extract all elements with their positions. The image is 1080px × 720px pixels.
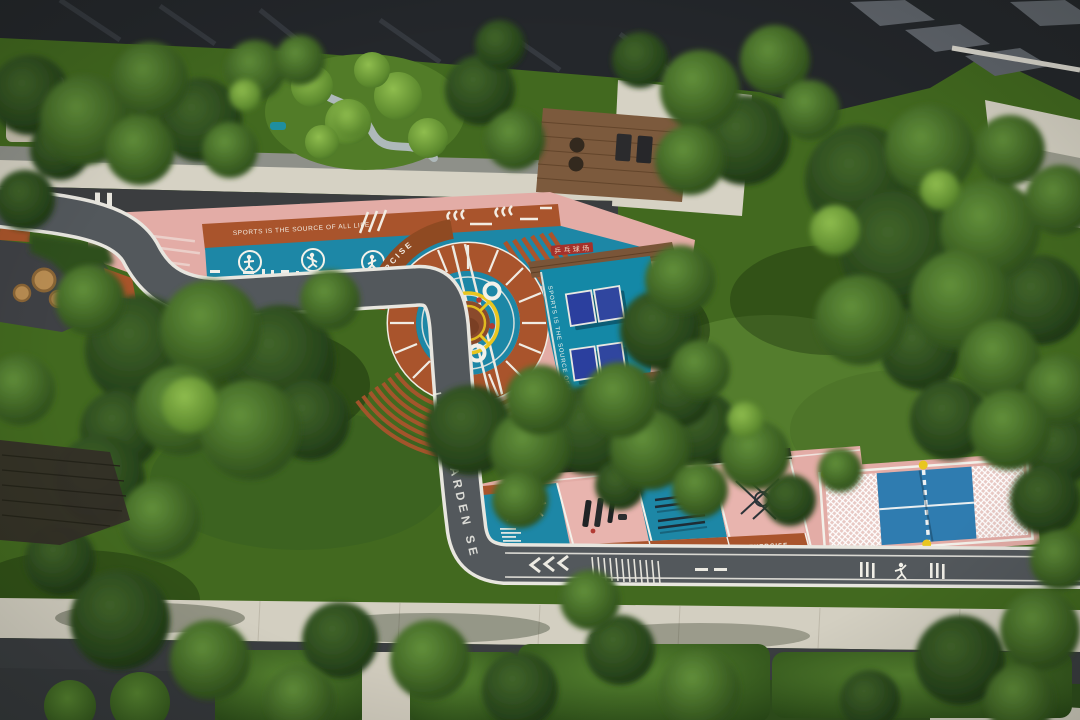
scene-canvas: SPORTS IS THE SOURCE OF ALL LIFE (0, 0, 1080, 720)
aerial-photo-scene: SPORTS IS THE SOURCE OF ALL LIFE (0, 0, 1080, 720)
vignette (0, 0, 1080, 720)
